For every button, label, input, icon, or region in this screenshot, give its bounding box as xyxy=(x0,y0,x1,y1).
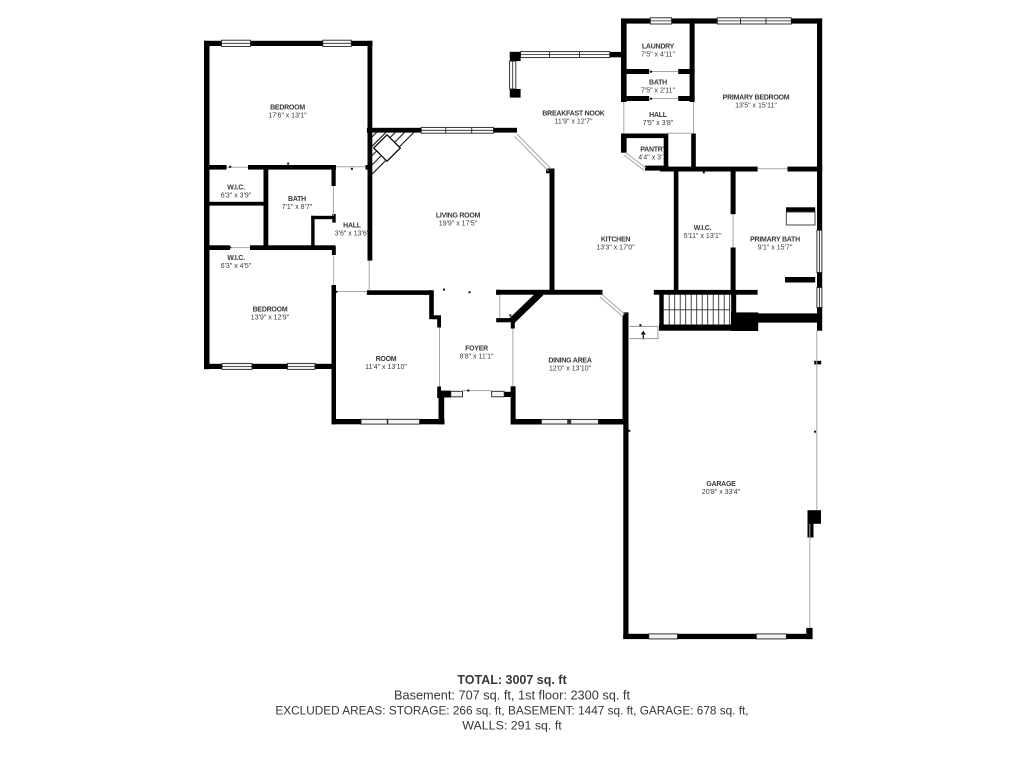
svg-text:PRIMARY BEDROOM: PRIMARY BEDROOM xyxy=(723,95,790,102)
svg-text:HALL: HALL xyxy=(343,223,362,230)
svg-text:7'5" x 2'11": 7'5" x 2'11" xyxy=(641,88,675,95)
svg-text:PRIMARY BATH: PRIMARY BATH xyxy=(750,237,800,244)
svg-text:Basement: 707 sq. ft, 1st floo: Basement: 707 sq. ft, 1st floor: 2300 sq… xyxy=(394,688,630,703)
svg-text:13'3" x 17'0": 13'3" x 17'0" xyxy=(596,245,635,252)
svg-text:19'9" x 17'5": 19'9" x 17'5" xyxy=(439,221,478,228)
svg-text:LIVING ROOM: LIVING ROOM xyxy=(436,213,481,220)
svg-text:W.I.C.: W.I.C. xyxy=(227,255,245,262)
svg-text:13'5" x 15'11": 13'5" x 15'11" xyxy=(735,103,777,110)
svg-text:ROOM: ROOM xyxy=(376,356,397,363)
svg-text:5'11" x 13'1": 5'11" x 13'1" xyxy=(684,233,722,240)
svg-text:PANTRY: PANTRY xyxy=(640,147,667,154)
svg-text:EXCLUDED AREAS: STORAGE: 266 s: EXCLUDED AREAS: STORAGE: 266 sq. ft, BAS… xyxy=(275,704,748,718)
svg-text:DINING AREA: DINING AREA xyxy=(548,358,591,365)
svg-text:BEDROOM: BEDROOM xyxy=(253,306,288,313)
svg-text:7'5" x 3'8": 7'5" x 3'8" xyxy=(643,120,674,127)
svg-text:KITCHEN: KITCHEN xyxy=(601,237,631,244)
svg-text:FOYER: FOYER xyxy=(465,346,488,353)
svg-text:6'3" x 3'9": 6'3" x 3'9" xyxy=(221,193,252,200)
svg-text:BATH: BATH xyxy=(649,80,667,87)
svg-text:3'6" x 13'6": 3'6" x 13'6" xyxy=(335,231,370,238)
svg-text:11'4" x 13'10": 11'4" x 13'10" xyxy=(365,364,407,371)
svg-text:6'3" x 4'5": 6'3" x 4'5" xyxy=(221,263,252,270)
svg-text:12'0" x 13'10": 12'0" x 13'10" xyxy=(549,366,592,373)
svg-text:GARAGE: GARAGE xyxy=(706,481,736,488)
svg-text:7'5" x 4'11": 7'5" x 4'11" xyxy=(641,52,675,59)
svg-text:11'9" x 12'7": 11'9" x 12'7" xyxy=(555,119,593,126)
svg-text:9'1" x 15'7": 9'1" x 15'7" xyxy=(758,245,793,252)
svg-text:WALLS: 291 sq. ft: WALLS: 291 sq. ft xyxy=(462,719,562,733)
svg-text:17'6" x 13'1": 17'6" x 13'1" xyxy=(268,113,307,120)
svg-text:20'8" x 33'4": 20'8" x 33'4" xyxy=(702,489,741,496)
svg-text:TOTAL: 3007 sq. ft: TOTAL: 3007 sq. ft xyxy=(457,673,567,687)
svg-text:W.I.C.: W.I.C. xyxy=(694,225,712,232)
svg-text:7'1" x 8'7": 7'1" x 8'7" xyxy=(282,204,313,211)
svg-text:BREAKFAST NOOK: BREAKFAST NOOK xyxy=(542,111,604,118)
svg-text:HALL: HALL xyxy=(649,112,668,119)
svg-text:W.I.C.: W.I.C. xyxy=(227,185,245,192)
svg-text:LAUNDRY: LAUNDRY xyxy=(642,44,675,51)
svg-text:13'9" x 12'9": 13'9" x 12'9" xyxy=(251,314,290,321)
svg-text:8'8" x 11'1": 8'8" x 11'1" xyxy=(460,354,494,361)
svg-text:BEDROOM: BEDROOM xyxy=(270,105,305,112)
svg-text:BATH: BATH xyxy=(288,196,306,203)
